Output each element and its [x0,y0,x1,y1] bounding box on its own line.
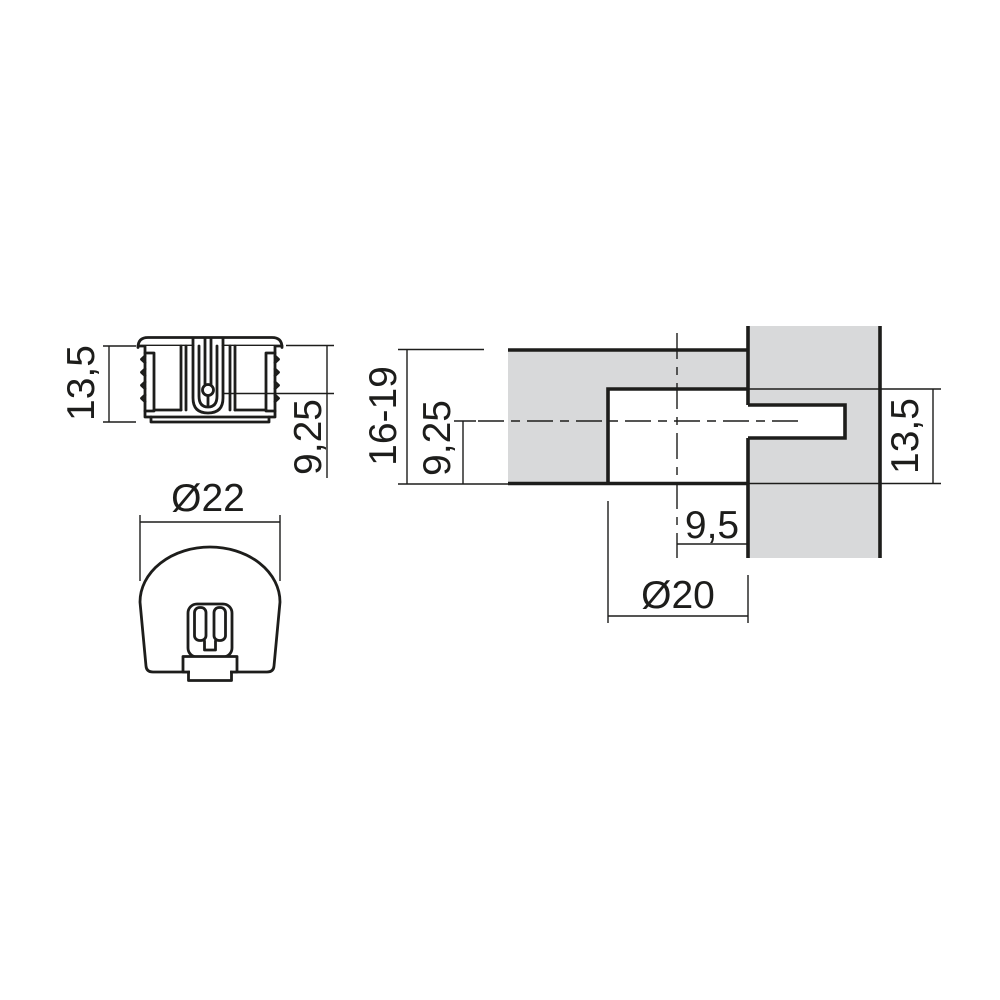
foot-tab-fill [190,668,230,680]
cam-fitting-drawing: 13,5 9,25 Ø22 [0,0,1000,1000]
technical-drawing-page: 13,5 9,25 Ø22 [0,0,1000,1000]
pin-tip [203,385,214,396]
dim-label-axis-distance: 9,25 [416,400,459,476]
dim-label-hole-diameter: Ø20 [641,574,715,617]
front-view: Ø22 [140,477,280,681]
dim-label-side-axis: 9,25 [287,399,330,475]
vertical-panel-fill [748,326,880,558]
dim-axis-distance: 9,25 [416,400,476,484]
dim-edge-distance: 9,5 [677,504,748,547]
dim-side-axis: 9,25 [286,346,334,479]
keyhole-slot-right [214,608,226,641]
dim-side-height: 13,5 [60,345,136,422]
bore-hole-cutout [608,389,748,484]
side-view: 13,5 9,25 [60,338,334,479]
keyhole-slot-left [195,608,207,641]
dim-label-edge-distance: 9,5 [685,504,739,547]
dim-label-bore-depth: 13,5 [884,398,927,474]
section-view: 16-19 9,25 13,5 9,5 Ø20 [362,326,941,623]
dim-label-side-height: 13,5 [60,345,103,421]
dim-label-panel-thickness: 16-19 [362,366,405,466]
dim-label-front-diameter: Ø22 [171,477,245,520]
